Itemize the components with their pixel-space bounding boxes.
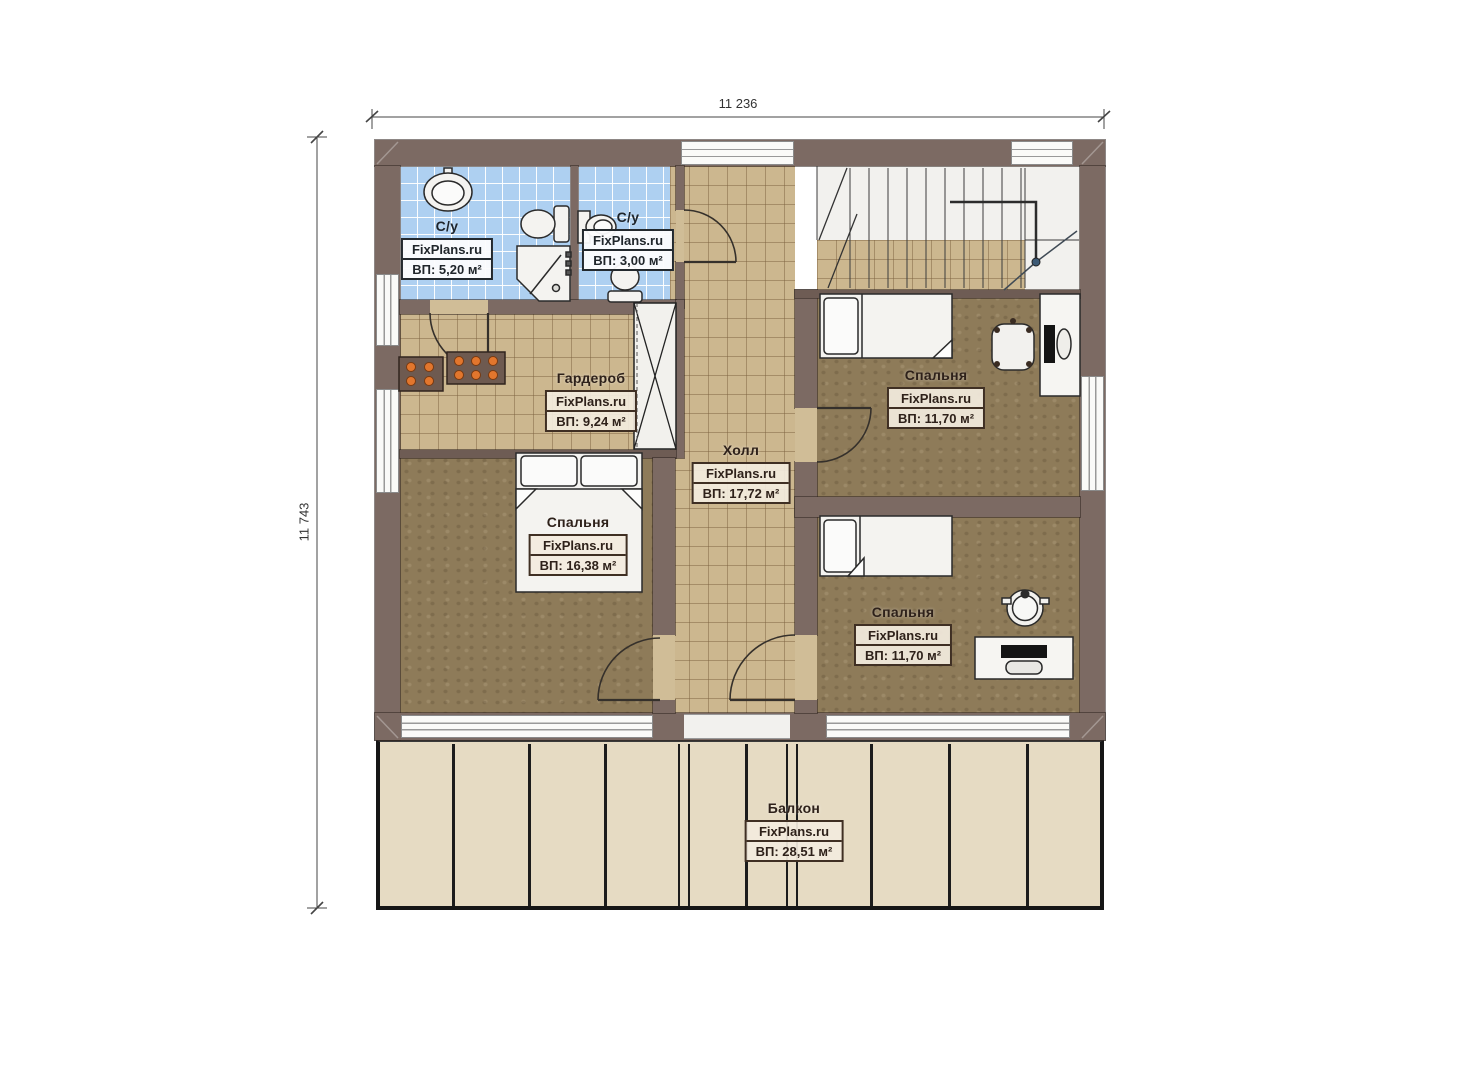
door-opening-bedroom-br (795, 635, 817, 700)
door-opening-bedroom-left (653, 635, 675, 700)
room-area: ВП: 11,70 м² (889, 409, 983, 427)
balcony-deck (376, 740, 1104, 910)
room-info-box: FixPlans.ru ВП: 16,38 м² (529, 534, 628, 576)
room-info-box: FixPlans.ru ВП: 17,72 м² (692, 462, 791, 504)
balcony-divider (452, 744, 455, 906)
room-name: Спальня (854, 604, 952, 620)
wall-bedrooms-right-divider (795, 497, 1080, 517)
hall-floor (670, 166, 795, 715)
door-opening-bath-small (676, 210, 684, 262)
door-opening-bath-large (430, 300, 488, 314)
window-left-upper (377, 275, 398, 345)
room-name: Холл (692, 442, 791, 458)
wall-bedroom-tr-top (795, 290, 1080, 298)
room-label-bedroom-bottom-right: Спальня FixPlans.ru ВП: 11,70 м² (854, 604, 952, 666)
watermark-text: FixPlans.ru (547, 392, 635, 412)
window-top-right (1012, 142, 1072, 164)
wall-bedroom-left-lower (653, 700, 675, 713)
room-area: ВП: 5,20 м² (403, 260, 491, 278)
window-bedroom-left-balcony (402, 716, 652, 737)
room-label-wardrobe: Гардероб FixPlans.ru ВП: 9,24 м² (545, 370, 637, 432)
room-area: ВП: 28,51 м² (747, 842, 842, 860)
room-info-box: FixPlans.ru ВП: 11,70 м² (887, 387, 985, 429)
wall-hall-right-1 (795, 290, 817, 408)
room-name: Спальня (529, 514, 628, 530)
room-area: ВП: 17,72 м² (694, 484, 789, 502)
bedroom-left-floor (400, 455, 653, 713)
floor-plan: С/у FixPlans.ru ВП: 5,20 м² С/у FixPlans… (0, 0, 1473, 1080)
wall-wardrobe-bedroom-divider (400, 450, 676, 458)
balcony-divider (948, 744, 951, 906)
balcony-post (678, 744, 690, 906)
room-area: ВП: 9,24 м² (547, 412, 635, 430)
balcony-divider (528, 744, 531, 906)
window-right-bedroom (1082, 377, 1103, 490)
watermark-text: FixPlans.ru (747, 822, 842, 842)
dimension-height-label: 11 743 (297, 498, 312, 547)
balcony-divider (1026, 744, 1029, 906)
balcony-divider (604, 744, 607, 906)
balcony-divider (870, 744, 873, 906)
room-name: Спальня (887, 367, 985, 383)
room-info-box: FixPlans.ru ВП: 11,70 м² (854, 624, 952, 666)
room-info-box: FixPlans.ru ВП: 3,00 м² (582, 229, 674, 271)
room-label-hall: Холл FixPlans.ru ВП: 17,72 м² (692, 442, 791, 504)
watermark-text: FixPlans.ru (584, 231, 672, 251)
room-label-balcony: Балкон FixPlans.ru ВП: 28,51 м² (745, 800, 844, 862)
watermark-text: FixPlans.ru (856, 626, 950, 646)
room-label-bath-small: С/у FixPlans.ru ВП: 3,00 м² (582, 209, 674, 271)
dimension-width-label: 11 236 (714, 96, 763, 111)
wall-bath-small-right-upper (676, 166, 684, 210)
room-name: С/у (582, 209, 674, 225)
window-top-hall (682, 142, 793, 164)
wall-bedroom-left-upper (653, 458, 675, 635)
watermark-text: FixPlans.ru (889, 389, 983, 409)
room-info-box: FixPlans.ru ВП: 9,24 м² (545, 390, 637, 432)
dimension-line-top (366, 109, 1110, 129)
room-area: ВП: 3,00 м² (584, 251, 672, 269)
room-info-box: FixPlans.ru ВП: 28,51 м² (745, 820, 844, 862)
room-name: С/у (401, 218, 493, 234)
wall-hall-right-3 (795, 700, 817, 713)
room-info-box: FixPlans.ru ВП: 5,20 м² (401, 238, 493, 280)
room-area: ВП: 16,38 м² (531, 556, 626, 574)
room-label-bath-large: С/у FixPlans.ru ВП: 5,20 м² (401, 218, 493, 280)
wall-hall-right-2 (795, 462, 817, 635)
room-label-bedroom-top-right: Спальня FixPlans.ru ВП: 11,70 м² (887, 367, 985, 429)
balcony-door-opening (684, 714, 790, 739)
door-opening-bedroom-tr (795, 408, 817, 462)
room-area: ВП: 11,70 м² (856, 646, 950, 664)
wall-wardrobe-hall (676, 300, 684, 458)
window-bedroom-br-balcony (827, 716, 1069, 737)
window-left-lower (377, 390, 398, 492)
watermark-text: FixPlans.ru (531, 536, 626, 556)
wall-bath-partition (571, 166, 578, 300)
understair-floor (817, 240, 1025, 290)
room-name: Балкон (745, 800, 844, 816)
room-name: Гардероб (545, 370, 637, 386)
room-label-bedroom-left: Спальня FixPlans.ru ВП: 16,38 м² (529, 514, 628, 576)
watermark-text: FixPlans.ru (403, 240, 491, 260)
watermark-text: FixPlans.ru (694, 464, 789, 484)
